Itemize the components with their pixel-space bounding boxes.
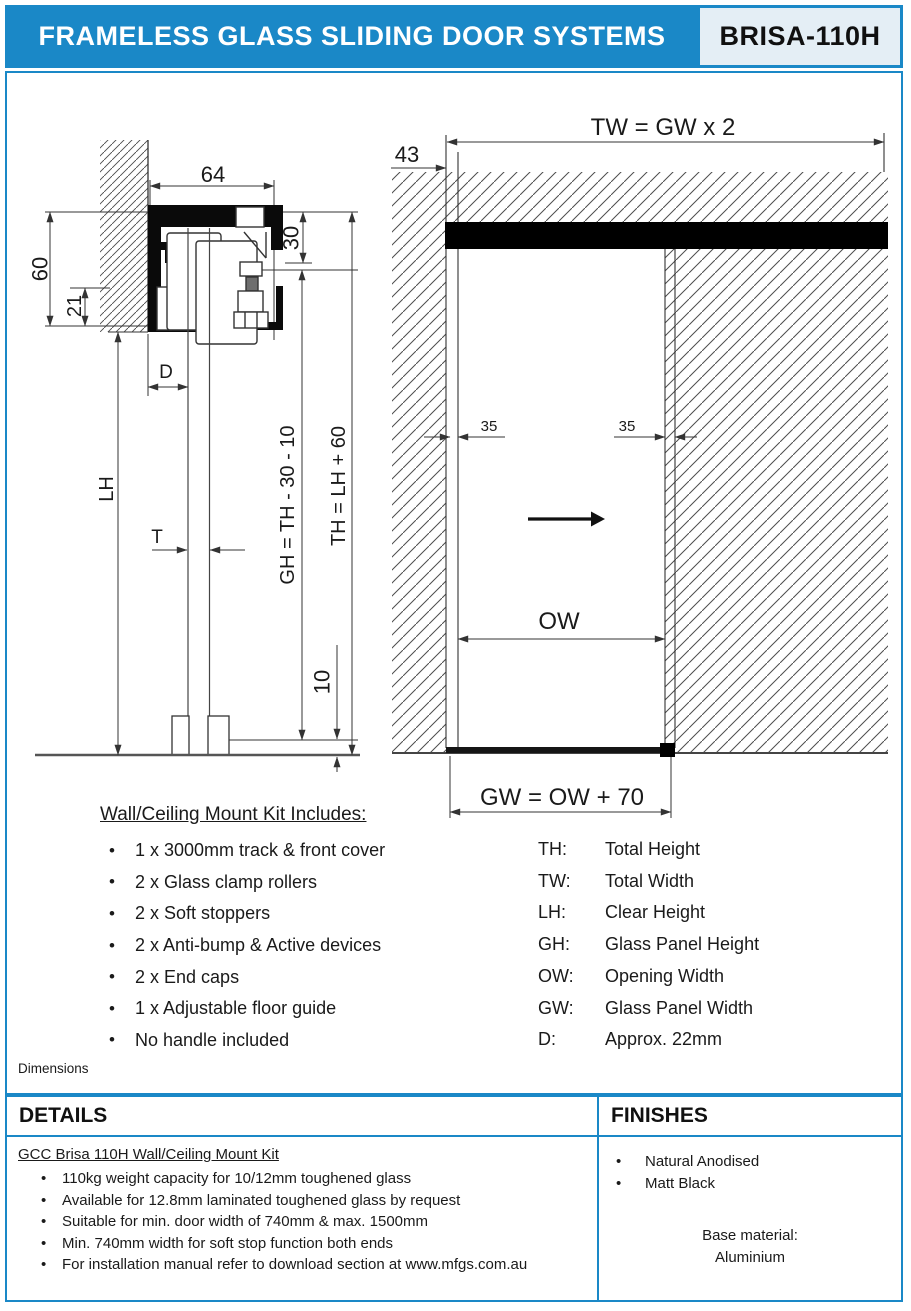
bullet-icon: • [18, 1254, 62, 1276]
list-item: •110kg weight capacity for 10/12mm tough… [18, 1168, 583, 1190]
dim-tw: TW = GW x 2 [591, 114, 736, 141]
header-bar: FRAMELESS GLASS SLIDING DOOR SYSTEMS BRI… [5, 5, 903, 68]
dim-60: 60 [28, 257, 53, 281]
bullet-icon: • [100, 904, 135, 924]
details-section: GCC Brisa 110H Wall/Ceiling Mount Kit •1… [7, 1137, 597, 1300]
bullet-icon: • [100, 1030, 135, 1050]
abbr-value: Clear Height [605, 897, 759, 929]
base-material-value: Aluminium [599, 1247, 901, 1269]
abbr-key: TH: [538, 834, 605, 866]
bullet-icon: • [100, 999, 135, 1019]
dim-t: T [151, 527, 163, 548]
abbr-key: GW: [538, 993, 605, 1025]
dim-ow: OW [538, 608, 580, 635]
dim-43: 43 [395, 142, 419, 167]
list-item: •Available for 12.8mm laminated toughene… [18, 1190, 583, 1212]
list-item: •No handle included [100, 1025, 540, 1057]
bullet-icon: • [599, 1173, 645, 1195]
list-item: •For installation manual refer to downlo… [18, 1254, 583, 1276]
track-band [445, 222, 888, 249]
elevation-drawing: TW = GW x 2 43 35 35 OW GW = OW + 70 [391, 114, 888, 818]
glass-bottom-edge [446, 747, 675, 753]
list-item: •Matt Black [599, 1173, 901, 1195]
abbr-value: Total Height [605, 834, 759, 866]
bullet-icon: • [18, 1168, 62, 1190]
dim-21: 21 [64, 295, 86, 317]
bullet-icon: • [18, 1233, 62, 1255]
list-item: •1 x Adjustable floor guide [100, 993, 540, 1025]
list-item: •2 x End caps [100, 961, 540, 993]
abbr-value: Glass Panel Width [605, 993, 759, 1025]
wall-hatch-elevation [392, 172, 888, 753]
kit-list: •1 x 3000mm track & front cover •2 x Gla… [100, 835, 540, 1056]
bullet-icon: • [18, 1211, 62, 1233]
abbr-value: Opening Width [605, 961, 759, 993]
glass-left-overlap [447, 249, 458, 753]
bullet-icon: • [100, 872, 135, 892]
dim-lh: LH [96, 476, 118, 502]
spec-table: DETAILS FINISHES GCC Brisa 110H Wall/Cei… [5, 1095, 903, 1302]
list-item: •2 x Anti-bump & Active devices [100, 930, 540, 962]
finishes-section: •Natural Anodised •Matt Black Base mater… [597, 1137, 901, 1300]
abbr-key: LH: [538, 897, 605, 929]
floor-guide [172, 716, 229, 755]
kit-list-section: Wall/Ceiling Mount Kit Includes: •1 x 30… [100, 804, 540, 1056]
dim-10: 10 [310, 670, 335, 694]
floor-guide-block [660, 743, 675, 757]
details-list: •110kg weight capacity for 10/12mm tough… [18, 1168, 583, 1276]
abbr-value: Glass Panel Height [605, 929, 759, 961]
bullet-icon: • [599, 1151, 645, 1173]
base-material-label: Base material: [599, 1225, 901, 1247]
wall-hatch [100, 140, 148, 332]
kit-list-heading: Wall/Ceiling Mount Kit Includes: [100, 804, 540, 826]
details-header: DETAILS [7, 1097, 597, 1137]
list-item: •1 x 3000mm track & front cover [100, 835, 540, 867]
dim-gh: GH = TH - 30 - 10 [277, 425, 299, 584]
finishes-list: •Natural Anodised •Matt Black [599, 1151, 901, 1195]
abbr-value: Approx. 22mm [605, 1024, 759, 1056]
model-badge: BRISA-110H [700, 8, 900, 65]
bullet-icon: • [100, 841, 135, 861]
dim-35-right: 35 [619, 418, 636, 435]
finishes-header: FINISHES [597, 1097, 901, 1137]
list-item: •2 x Soft stoppers [100, 898, 540, 930]
details-subheading: GCC Brisa 110H Wall/Ceiling Mount Kit [18, 1146, 583, 1163]
abbr-value: Total Width [605, 866, 759, 898]
base-material: Base material: Aluminium [599, 1225, 901, 1269]
dim-d: D [159, 362, 173, 383]
abbr-key: TW: [538, 866, 605, 898]
dim-35-left: 35 [481, 418, 498, 435]
dimensions-label: Dimensions [18, 1061, 89, 1076]
abbreviation-legend: TH:Total Height TW:Total Width LH:Clear … [538, 834, 759, 1056]
bullet-icon: • [18, 1190, 62, 1212]
list-item: •Min. 740mm width for soft stop function… [18, 1233, 583, 1255]
abbr-key: OW: [538, 961, 605, 993]
roller-mechanism [157, 207, 268, 344]
spec-sheet-page: FRAMELESS GLASS SLIDING DOOR SYSTEMS BRI… [0, 0, 911, 1311]
list-item: •Suitable for min. door width of 740mm &… [18, 1211, 583, 1233]
list-item: •2 x Glass clamp rollers [100, 867, 540, 899]
list-item: •Natural Anodised [599, 1151, 901, 1173]
dim-th: TH = LH + 60 [328, 426, 350, 546]
bullet-icon: • [100, 936, 135, 956]
page-title: FRAMELESS GLASS SLIDING DOOR SYSTEMS [5, 5, 699, 68]
dim-30: 30 [279, 226, 304, 250]
section-drawing: 64 30 60 21 D LH T GH = TH - 30 - 10 TH … [28, 140, 360, 772]
abbr-key: GH: [538, 929, 605, 961]
bullet-icon: • [100, 967, 135, 987]
abbr-key: D: [538, 1024, 605, 1056]
slide-direction-arrow [528, 512, 605, 527]
dim-64: 64 [201, 162, 225, 187]
